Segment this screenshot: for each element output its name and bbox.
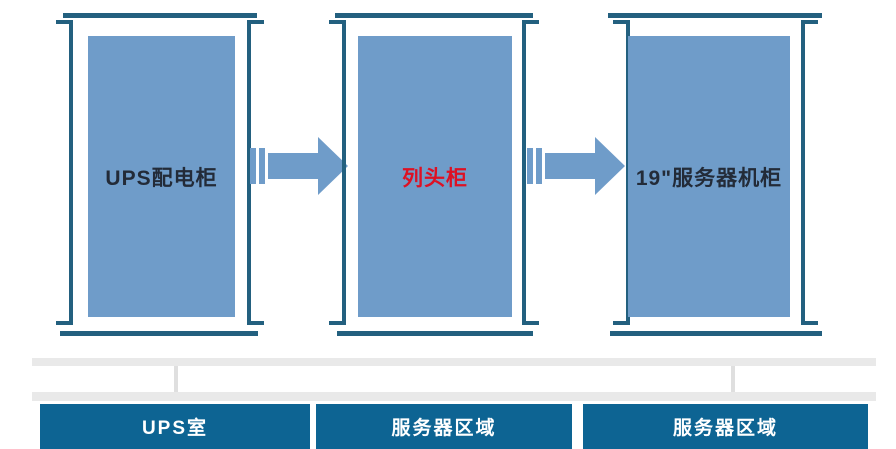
cabinet-rowhead-label: 列头柜 — [402, 162, 468, 192]
cabinet-rowhead-top-rail — [335, 13, 533, 18]
cabinet-rowhead-body: 列头柜 — [358, 36, 512, 317]
room-strip-connector-right — [731, 366, 735, 392]
room-strip-upper-bar — [32, 358, 876, 366]
flow-arrow-1-tick — [250, 148, 256, 184]
zone-ups-room-label: UPS室 — [142, 413, 208, 440]
power-distribution-diagram: UPS配电柜 列头柜 19"服务器机柜 UPS室 服务器区域 服务器区 — [0, 0, 896, 449]
cabinet-rack-body: 19"服务器机柜 — [628, 36, 790, 317]
cabinet-rack-bottom-rail — [610, 331, 822, 336]
flow-arrow-2-tick — [527, 148, 533, 184]
cabinet-ups-body: UPS配电柜 — [88, 36, 235, 317]
flow-arrow-2-tick — [536, 148, 542, 184]
zone-server-area-2-label: 服务器区域 — [673, 413, 778, 440]
cabinet-rack-label: 19"服务器机柜 — [636, 162, 782, 192]
cabinet-ups-label: UPS配电柜 — [105, 162, 217, 192]
cabinet-ups-left-bracket — [56, 20, 73, 325]
zone-server-area-1: 服务器区域 — [316, 404, 572, 449]
cabinet-rack-right-bracket — [801, 20, 818, 325]
flow-arrow-2 — [527, 137, 625, 195]
flow-arrow-1-shaft — [268, 153, 318, 179]
zone-server-area-1-label: 服务器区域 — [391, 413, 496, 440]
room-strip-lower-bar — [32, 392, 876, 401]
flow-arrow-1-tick — [259, 148, 265, 184]
zone-ups-room: UPS室 — [40, 404, 310, 449]
room-strip-connector-left — [174, 366, 178, 392]
cabinet-rowhead-left-bracket — [329, 20, 346, 325]
cabinet-rack-top-rail — [608, 13, 822, 18]
cabinet-rowhead-bottom-rail — [337, 331, 533, 336]
cabinet-ups-top-rail — [63, 13, 257, 18]
zone-server-area-2: 服务器区域 — [583, 404, 868, 449]
flow-arrow-2-shaft — [545, 153, 595, 179]
cabinet-ups-bottom-rail — [60, 331, 258, 336]
